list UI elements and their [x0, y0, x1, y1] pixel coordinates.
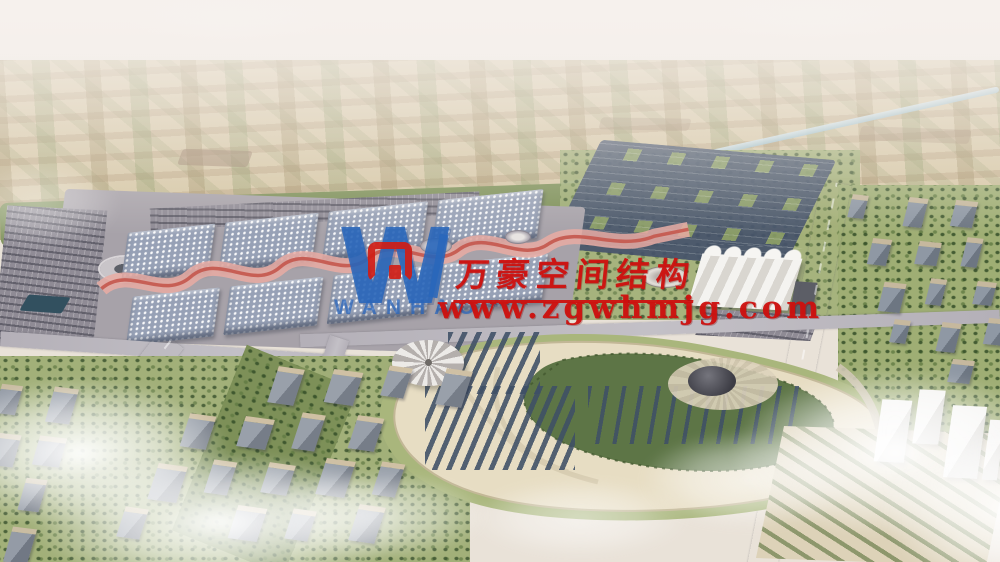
watermark-website: www.zgwhmjg.com — [438, 290, 823, 326]
cloud — [250, 470, 490, 560]
pond — [19, 295, 70, 314]
logo-red-emblem-icon — [368, 242, 412, 282]
aerial-rendering-scene: W WANHAO 万豪空间结构 www.zgwhmjg.com — [0, 0, 1000, 562]
dark-cone-pavilion — [688, 366, 736, 396]
atmospheric-haze — [0, 0, 1000, 235]
